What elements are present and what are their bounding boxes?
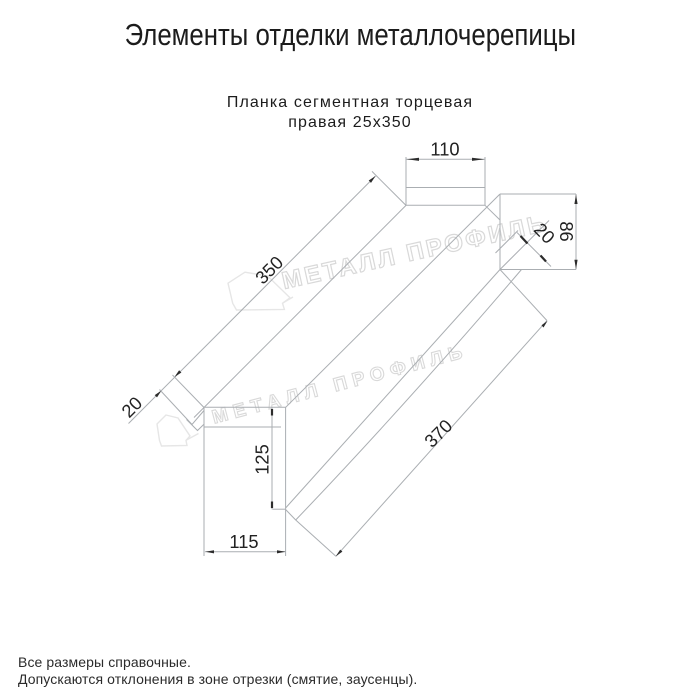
svg-text:115: 115 xyxy=(229,531,258,552)
svg-text:МЕТАЛЛ ПРОФИЛЬ: МЕТАЛЛ ПРОФИЛЬ xyxy=(210,341,470,429)
svg-text:20: 20 xyxy=(117,392,146,421)
svg-text:МЕТАЛЛ ПРОФИЛЬ: МЕТАЛЛ ПРОФИЛЬ xyxy=(279,210,550,295)
svg-text:370: 370 xyxy=(420,415,456,451)
svg-text:110: 110 xyxy=(430,138,459,159)
svg-text:125: 125 xyxy=(252,444,273,475)
